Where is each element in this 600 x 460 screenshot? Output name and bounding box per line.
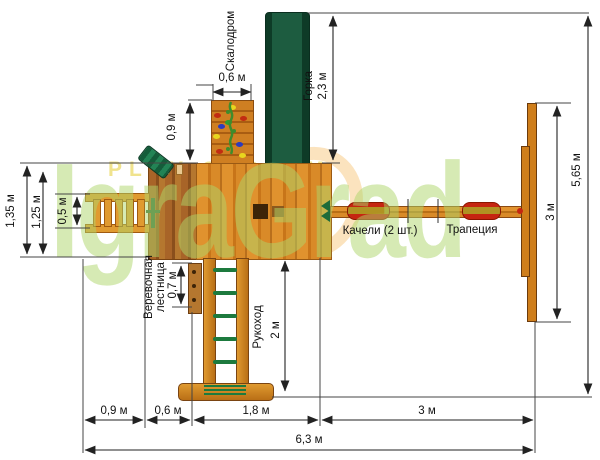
label-swings: Качели (2 шт.) [343, 225, 418, 237]
dim-bottom-swings: 3 м [418, 405, 436, 417]
label-rope-ladder-1: Веревочная [143, 255, 155, 319]
dim-left-inner: 1,25 м [31, 195, 43, 228]
dim-wall-offset: 0,9 м [166, 113, 178, 140]
dim-bottom-ladder: 0,9 м [100, 405, 127, 417]
dim-ladder-width: 0,5 м [57, 197, 69, 224]
dim-monkey-bars: 2 м [270, 321, 282, 339]
dim-left-total: 1,35 м [5, 194, 17, 227]
swing-hanger-ticks [408, 199, 438, 223]
dim-wall-width: 0,6 м [218, 72, 245, 84]
playground-plan-diagram: PLAY SYSTEM [0, 0, 600, 460]
label-climbing-wall: Скалодром [225, 11, 237, 71]
label-trapeze: Трапеция [446, 224, 497, 236]
label-slide: Горка [303, 71, 315, 101]
label-monkey-bars: Рукоход [252, 305, 264, 348]
dim-bottom-platform: 1,8 м [242, 405, 269, 417]
dim-swing-frame: 3 м [545, 203, 557, 221]
dim-slide-length: 2,3 м [317, 72, 329, 99]
dim-bottom-balcony: 0,6 м [154, 405, 181, 417]
dim-bottom-total: 6,3 м [295, 434, 322, 446]
dim-total-height: 5,65 м [571, 153, 583, 186]
swing-beam-brackets [321, 200, 523, 222]
dim-rope-ladder: 0,7 м [167, 271, 179, 298]
dimension-overlay [0, 0, 600, 460]
climbing-rope [226, 102, 236, 154]
label-rope-ladder-2: лестница [155, 262, 167, 312]
